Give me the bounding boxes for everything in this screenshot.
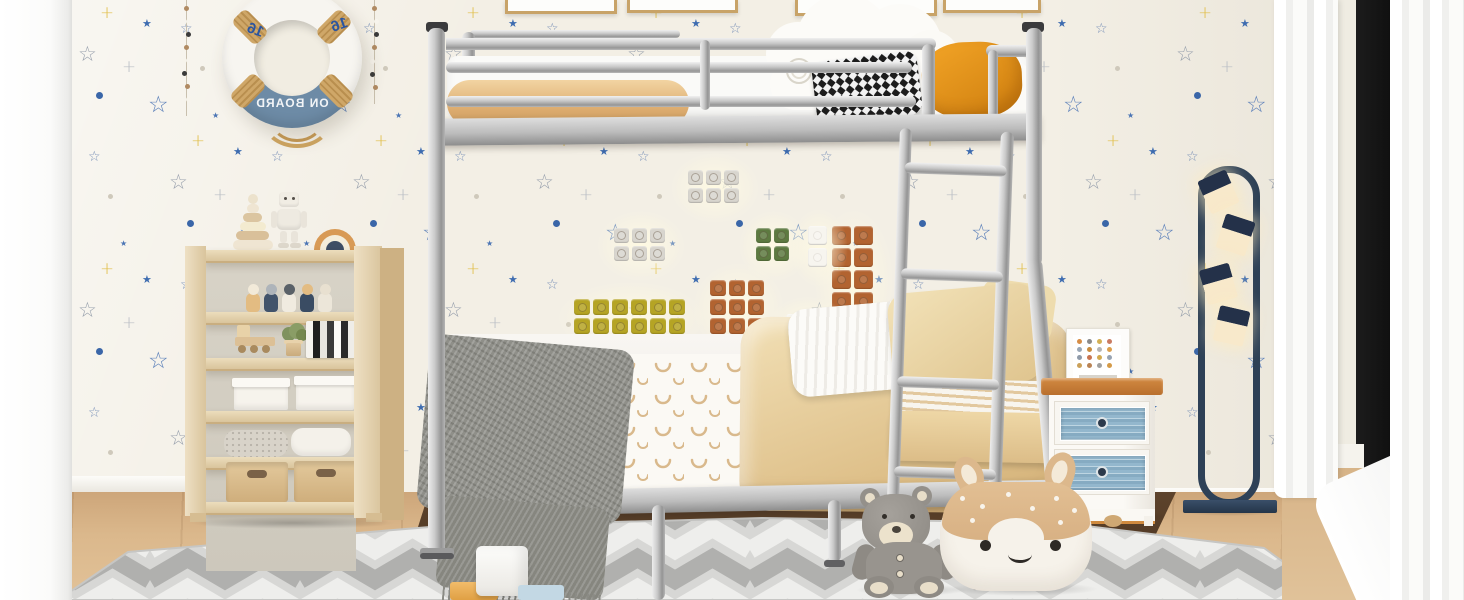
decor-shape xyxy=(1050,540,1061,551)
toy-block-blue xyxy=(518,585,564,600)
decor-shape xyxy=(960,496,965,501)
decor-shape xyxy=(882,514,887,519)
decor-shape xyxy=(1072,508,1077,513)
deer-plush-pillow xyxy=(940,448,1095,596)
decor-shape xyxy=(910,514,915,519)
decor-shape xyxy=(1006,492,1011,497)
decor-shape xyxy=(980,504,985,509)
decor-shape xyxy=(970,518,975,523)
lamp-cube xyxy=(1197,169,1240,214)
decor-shape xyxy=(896,570,904,578)
lamp-cube xyxy=(1212,305,1250,347)
decor-shape xyxy=(1054,496,1059,501)
lamp-cube xyxy=(1199,262,1239,305)
decor-shape xyxy=(870,582,888,594)
lamp-cube xyxy=(1215,213,1256,257)
decor-shape xyxy=(896,554,904,562)
decor-shape xyxy=(920,582,938,594)
decor-shape xyxy=(1008,546,1032,563)
decor-shape xyxy=(1030,506,1035,511)
kids-bedroom-product-photo: ★☆+☆+★☆★☆+☆+★☆★☆+☆+★☆★☆+☆+★☆★☆+☆+★☆★☆+☆+… xyxy=(0,0,1464,600)
decor-shape xyxy=(892,526,901,533)
decor-shape xyxy=(1058,520,1063,525)
decor-shape xyxy=(980,540,991,551)
lamp-base xyxy=(1183,500,1277,513)
floor-lamp xyxy=(0,0,1464,600)
curtain-panel-right xyxy=(1390,0,1464,600)
left-wall-panel xyxy=(0,0,72,600)
curtain-panel-left xyxy=(1274,0,1338,498)
